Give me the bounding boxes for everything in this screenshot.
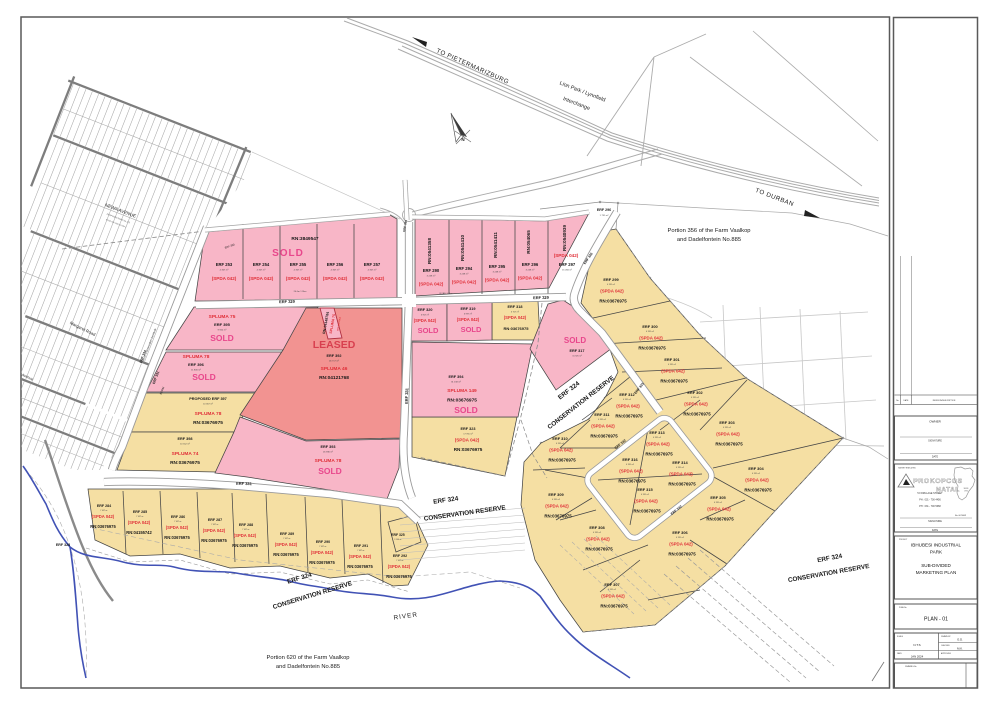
svg-text:3 249 m²: 3 249 m² xyxy=(493,271,502,274)
svg-text:RN:03676975: RN:03676975 xyxy=(683,412,711,417)
svg-text:PH : 031 - 700 4456: PH : 031 - 700 4456 xyxy=(919,499,941,502)
svg-text:SPLUMA 78: SPLUMA 78 xyxy=(315,458,342,464)
svg-text:ERF 329: ERF 329 xyxy=(279,299,296,304)
svg-text:PLAN - 01: PLAN - 01 xyxy=(924,617,948,623)
svg-text:RN:03676975: RN:03676975 xyxy=(544,514,572,519)
svg-text:PROJECT: PROJECT xyxy=(899,539,908,541)
svg-text:(SPDA 042): (SPDA 042) xyxy=(716,432,740,437)
svg-text:RN:03676975: RN:03676975 xyxy=(347,564,373,569)
svg-text:ERF 286: ERF 286 xyxy=(171,515,185,519)
svg-text:SOLD: SOLD xyxy=(210,333,234,343)
svg-text:46 717 m²: 46 717 m² xyxy=(329,360,339,363)
svg-text:7 457 m²: 7 457 m² xyxy=(174,520,182,523)
svg-text:4 391 m²: 4 391 m² xyxy=(552,498,560,501)
svg-text:1 791 m²: 1 791 m² xyxy=(600,214,609,217)
svg-text:ERF 302: ERF 302 xyxy=(687,390,703,395)
svg-text:ERF 394: ERF 394 xyxy=(449,375,465,379)
svg-text:4 391 m²: 4 391 m² xyxy=(623,398,631,401)
svg-text:ERF 290: ERF 290 xyxy=(423,268,440,273)
svg-text:ERF 323: ERF 323 xyxy=(461,427,476,431)
svg-text:DRAWN BY: DRAWN BY xyxy=(941,635,951,638)
svg-text:4 391 m²: 4 391 m² xyxy=(691,396,699,399)
svg-text:RN:03676975: RN:03676975 xyxy=(660,379,688,384)
svg-text:4 391 m²: 4 391 m² xyxy=(626,463,634,466)
svg-text:ERF 392: ERF 392 xyxy=(327,354,342,358)
svg-text:ERF 257: ERF 257 xyxy=(364,262,381,267)
svg-text:RN:03676975: RN:03676975 xyxy=(164,535,190,540)
svg-text:APPROVED: APPROVED xyxy=(941,652,952,655)
svg-text:ERF 325: ERF 325 xyxy=(391,533,404,537)
svg-text:4 367 m²: 4 367 m² xyxy=(331,269,340,272)
svg-text:No. 00700W: No. 00700W xyxy=(955,515,966,517)
svg-text:(SPDA 042): (SPDA 042) xyxy=(234,533,257,538)
svg-text:(SPDA 042): (SPDA 042) xyxy=(600,289,624,294)
svg-text:RN:03676975: RN:03676975 xyxy=(668,482,696,487)
svg-text:3 249 m²: 3 249 m² xyxy=(460,273,469,276)
svg-text:(SPDA 042): (SPDA 042) xyxy=(349,554,372,559)
svg-text:ERF 288: ERF 288 xyxy=(239,523,253,527)
svg-text:DATE: DATE xyxy=(897,652,902,655)
svg-text:3 249 m²: 3 249 m² xyxy=(427,275,436,278)
svg-text:(SPDA 042): (SPDA 042) xyxy=(545,504,569,509)
svg-text:ERF 253: ERF 253 xyxy=(216,262,233,267)
svg-text:ERF 393: ERF 393 xyxy=(321,445,336,449)
svg-text:4 367 m²: 4 367 m² xyxy=(257,269,266,272)
svg-text:(SPDA 042): (SPDA 042) xyxy=(601,594,625,599)
svg-text:ERF 254: ERF 254 xyxy=(253,262,270,267)
svg-text:No: No xyxy=(896,400,898,402)
svg-text:(SPDA 042): (SPDA 042) xyxy=(414,318,437,323)
svg-text:PLAN No: PLAN No xyxy=(899,606,907,609)
svg-text:ERF 314: ERF 314 xyxy=(672,460,688,465)
svg-text:RN:03676975: RN:03676975 xyxy=(548,458,576,463)
svg-text:RN:3849547: RN:3849547 xyxy=(291,236,319,242)
svg-text:RN:03676975: RN:03676975 xyxy=(633,509,661,514)
svg-text:ERF 315: ERF 315 xyxy=(637,487,653,492)
svg-text:10 367 m²: 10 367 m² xyxy=(203,403,213,406)
svg-text:ERF 299: ERF 299 xyxy=(603,277,619,282)
svg-text:RN:04121768: RN:04121768 xyxy=(319,375,349,381)
svg-text:SOLD: SOLD xyxy=(318,466,342,476)
svg-text:4 391 m²: 4 391 m² xyxy=(641,493,649,496)
svg-text:RN:03676975: RN:03676975 xyxy=(744,488,772,493)
svg-text:17 765 m²: 17 765 m² xyxy=(463,433,473,436)
svg-text:9 922 m²: 9 922 m² xyxy=(218,329,227,332)
svg-text:ERF 309: ERF 309 xyxy=(548,492,564,497)
svg-text:RN:0541410: RN:0541410 xyxy=(460,235,465,261)
svg-text:Portion 356 of the Farm Vaalko: Portion 356 of the Farm Vaalkop xyxy=(667,228,750,234)
svg-text:RN:03676975: RN:03676975 xyxy=(232,543,258,548)
svg-text:SOLD: SOLD xyxy=(454,405,478,415)
svg-text:RN:03676975: RN:03676975 xyxy=(585,547,613,552)
svg-text:4 391 m²: 4 391 m² xyxy=(593,531,601,534)
svg-text:ERF 294: ERF 294 xyxy=(456,266,473,271)
svg-text:ERF 320: ERF 320 xyxy=(418,308,433,312)
svg-text:RN:03676975: RN:03676975 xyxy=(170,460,200,466)
svg-text:SOLD: SOLD xyxy=(192,372,216,382)
svg-text:SOLD: SOLD xyxy=(418,326,439,335)
svg-text:DRAWING No: DRAWING No xyxy=(905,665,916,668)
svg-text:4 391 m²: 4 391 m² xyxy=(608,588,616,591)
svg-text:DATE: DATE xyxy=(932,456,939,459)
svg-text:SPLUMA 149: SPLUMA 149 xyxy=(447,388,477,394)
svg-text:3 146 m²: 3 146 m² xyxy=(394,538,402,541)
svg-text:SOLD: SOLD xyxy=(461,325,482,334)
svg-text:RN:03676975: RN:03676975 xyxy=(193,420,223,426)
svg-text:ERF 319: ERF 319 xyxy=(461,307,476,311)
svg-text:RN:03676975: RN:03676975 xyxy=(706,517,734,522)
svg-text:PROPOSED ERF 397: PROPOSED ERF 397 xyxy=(189,397,227,401)
svg-text:MARKETING PLAN: MARKETING PLAN xyxy=(916,570,957,575)
svg-text:(SPDA 042): (SPDA 042) xyxy=(249,276,274,281)
svg-text:SUB-DIVIDED: SUB-DIVIDED xyxy=(921,563,951,568)
svg-text:1994: 1994 xyxy=(964,491,968,493)
svg-text:RN:03676975: RN:03676975 xyxy=(504,326,530,331)
svg-text:RN:03676975: RN:03676975 xyxy=(386,574,412,579)
svg-text:45 936 m²: 45 936 m² xyxy=(323,451,333,454)
svg-text:(SPDA 042): (SPDA 042) xyxy=(311,550,334,555)
svg-text:4 391 m²: 4 391 m² xyxy=(723,426,731,429)
svg-text:ERF 313: ERF 313 xyxy=(649,430,665,435)
svg-text:ERF 301: ERF 301 xyxy=(664,357,680,362)
svg-text:ERF 306: ERF 306 xyxy=(672,530,688,535)
svg-text:3 997 m²: 3 997 m² xyxy=(464,313,473,316)
svg-text:4 391 m²: 4 391 m² xyxy=(752,472,760,475)
svg-text:7 457 m²: 7 457 m² xyxy=(283,537,291,540)
svg-text:RN:0541358: RN:0541358 xyxy=(427,238,432,264)
svg-text:(SPDA 042): (SPDA 042) xyxy=(128,520,151,525)
svg-text:ERF 295: ERF 295 xyxy=(489,264,506,269)
svg-text:RN:03676975: RN:03676975 xyxy=(638,346,666,351)
svg-text:ERF 255: ERF 255 xyxy=(290,262,307,267)
svg-text:ERF 305: ERF 305 xyxy=(710,495,726,500)
svg-text:ERF 291: ERF 291 xyxy=(354,544,368,548)
svg-text:ERF 292: ERF 292 xyxy=(393,554,407,558)
svg-text:SIGNATURE: SIGNATURE xyxy=(928,520,942,523)
svg-text:4 391 m²: 4 391 m² xyxy=(598,418,606,421)
svg-text:RN:03676975: RN:03676975 xyxy=(599,299,627,304)
svg-text:RN:054065: RN:054065 xyxy=(526,230,531,254)
svg-text:RN:03676975: RN:03676975 xyxy=(273,552,299,557)
svg-text:(SPDA 042): (SPDA 042) xyxy=(388,564,411,569)
svg-text:(SPDA 042): (SPDA 042) xyxy=(286,276,311,281)
svg-text:(SPDA 042): (SPDA 042) xyxy=(504,315,527,320)
svg-text:RN:0541411: RN:0541411 xyxy=(493,232,498,258)
svg-text:(SPDA 042): (SPDA 042) xyxy=(549,448,573,453)
svg-text:SOLD: SOLD xyxy=(564,336,586,345)
svg-text:4 367 m²: 4 367 m² xyxy=(368,269,377,272)
svg-text:(SPDA 042): (SPDA 042) xyxy=(616,404,640,409)
svg-text:(SPDA 042): (SPDA 042) xyxy=(455,438,480,443)
svg-text:RN:03676975: RN:03676975 xyxy=(454,447,483,452)
svg-text:5 FORULAGE STREET: 5 FORULAGE STREET xyxy=(917,492,943,495)
svg-text:ERF 285: ERF 285 xyxy=(133,510,147,514)
svg-text:RN:03676975: RN:03676975 xyxy=(645,452,673,457)
svg-text:4 367 m²: 4 367 m² xyxy=(220,269,229,272)
svg-text:LEASED: LEASED xyxy=(313,339,356,351)
svg-text:RN:03676975: RN:03676975 xyxy=(715,442,743,447)
svg-text:SCALE: SCALE xyxy=(897,635,904,638)
svg-text:4 391 m²: 4 391 m² xyxy=(607,283,615,286)
svg-text:(SPDA 042): (SPDA 042) xyxy=(203,528,226,533)
svg-text:SPLUMA 78: SPLUMA 78 xyxy=(195,411,222,417)
svg-text:RN:03676975: RN:03676975 xyxy=(600,604,628,609)
svg-text:4 391 m²: 4 391 m² xyxy=(653,436,661,439)
svg-text:ERF 290: ERF 290 xyxy=(316,540,330,544)
svg-text:4 367 m²: 4 367 m² xyxy=(294,269,303,272)
svg-text:REVISION/DESCRIPTION: REVISION/DESCRIPTION xyxy=(933,400,956,402)
svg-text:7 457 m²: 7 457 m² xyxy=(319,545,327,548)
svg-text:7 457 m²: 7 457 m² xyxy=(100,509,108,512)
svg-text:RN:03676975: RN:03676975 xyxy=(590,434,618,439)
svg-text:(SPDA 042): (SPDA 042) xyxy=(591,424,615,429)
svg-text:ERF 307: ERF 307 xyxy=(604,582,619,587)
svg-text:ERF 310: ERF 310 xyxy=(552,436,567,441)
svg-text:RN:0540939: RN:0540939 xyxy=(562,225,567,251)
svg-text:7 457 m²: 7 457 m² xyxy=(357,549,365,552)
svg-text:PH : 031 - 700 5668: PH : 031 - 700 5668 xyxy=(919,505,941,508)
svg-text:(SPDA 042): (SPDA 042) xyxy=(275,542,298,547)
svg-text:and Dadelfontein No.885: and Dadelfontein No.885 xyxy=(276,664,340,670)
svg-text:(SPDA 042): (SPDA 042) xyxy=(707,507,731,512)
svg-text:ERF 318: ERF 318 xyxy=(508,305,523,309)
svg-text:(SPDA 042): (SPDA 042) xyxy=(639,336,663,341)
svg-text:7 457 m²: 7 457 m² xyxy=(136,515,144,518)
svg-text:ERF 287: ERF 287 xyxy=(208,518,222,522)
svg-text:(SPDA 042): (SPDA 042) xyxy=(419,282,444,287)
svg-text:RN:04155742: RN:04155742 xyxy=(126,530,152,535)
svg-text:(SPDA 042): (SPDA 042) xyxy=(586,537,610,542)
svg-text:RN:03676975: RN:03676975 xyxy=(618,479,646,484)
svg-text:N.T.S: N.T.S xyxy=(913,643,920,647)
svg-text:Portion 620 of the Farm Vaalko: Portion 620 of the Farm Vaalkop xyxy=(266,655,349,661)
svg-text:(SPDA 042): (SPDA 042) xyxy=(669,472,693,477)
svg-text:20.0m 1 3km: 20.0m 1 3km xyxy=(294,291,307,293)
svg-text:ERF 398: ERF 398 xyxy=(178,437,193,441)
svg-text:SPLUMA 74: SPLUMA 74 xyxy=(172,451,199,457)
svg-text:PARK: PARK xyxy=(930,550,943,555)
svg-text:4 391 m²: 4 391 m² xyxy=(668,363,676,366)
svg-text:(SPDA 042): (SPDA 042) xyxy=(212,276,237,281)
svg-text:RN:03676975: RN:03676975 xyxy=(309,560,335,565)
svg-text:RN:03676975: RN:03676975 xyxy=(668,552,696,557)
svg-text:(SPDA 042): (SPDA 042) xyxy=(457,317,480,322)
svg-text:OWNER: OWNER xyxy=(929,420,941,424)
svg-text:SPLUMA 75: SPLUMA 75 xyxy=(209,314,236,320)
svg-text:4 391 m²: 4 391 m² xyxy=(714,501,722,504)
svg-text:G.D.: G.D. xyxy=(957,638,963,642)
svg-text:ERF 331: ERF 331 xyxy=(404,387,410,404)
svg-text:ERF 296: ERF 296 xyxy=(522,262,539,267)
svg-text:SPLUMA 46: SPLUMA 46 xyxy=(321,366,348,372)
svg-text:ERF 316: ERF 316 xyxy=(622,457,638,462)
svg-text:M.K.: M.K. xyxy=(957,647,963,651)
svg-text:ERF 289: ERF 289 xyxy=(280,532,294,536)
svg-text:IBHUBESI INDUSTRIAL: IBHUBESI INDUSTRIAL xyxy=(911,543,961,548)
svg-text:ERF 311: ERF 311 xyxy=(594,412,610,417)
svg-text:(SPDA 042): (SPDA 042) xyxy=(554,253,579,258)
svg-text:15 925 m²: 15 925 m² xyxy=(572,355,582,358)
svg-text:DATE: DATE xyxy=(932,529,939,532)
svg-text:(SPDA 042): (SPDA 042) xyxy=(323,276,348,281)
svg-text:(SPDA 042): (SPDA 042) xyxy=(452,280,477,285)
svg-text:4 391 m²: 4 391 m² xyxy=(676,536,684,539)
svg-text:4 391 m²: 4 391 m² xyxy=(646,330,654,333)
svg-text:RN:03676975: RN:03676975 xyxy=(90,524,116,529)
svg-text:(SPDA 042): (SPDA 042) xyxy=(518,276,543,281)
svg-text:7 457 m²: 7 457 m² xyxy=(242,528,250,531)
svg-text:(SPDA 042): (SPDA 042) xyxy=(92,514,115,519)
svg-text:and Dadelfontein No.885: and Dadelfontein No.885 xyxy=(677,237,741,243)
svg-text:3 757 m²: 3 757 m² xyxy=(511,311,520,314)
svg-text:15 094 m²: 15 094 m² xyxy=(562,269,572,272)
svg-text:SINCE: SINCE xyxy=(964,488,969,490)
svg-text:10 312 m²: 10 312 m² xyxy=(180,443,190,446)
svg-text:ROAD 1 3km: ROAD 1 3km xyxy=(440,292,453,295)
svg-text:CHECKED: CHECKED xyxy=(941,645,950,647)
svg-text:ERF 303: ERF 303 xyxy=(719,420,735,425)
svg-text:ERF 284: ERF 284 xyxy=(97,504,111,508)
svg-text:31 158 m²: 31 158 m² xyxy=(451,381,461,384)
svg-text:4 391 m²: 4 391 m² xyxy=(676,466,684,469)
svg-text:ERF 300: ERF 300 xyxy=(642,324,657,329)
svg-text:RN:03676975: RN:03676975 xyxy=(615,414,643,419)
svg-text:(SPDA 042): (SPDA 042) xyxy=(485,278,510,283)
svg-text:(SPDA 042): (SPDA 042) xyxy=(619,469,643,474)
svg-text:SIGNATURE: SIGNATURE xyxy=(928,440,942,443)
svg-text:RN:03676975: RN:03676975 xyxy=(201,538,227,543)
svg-text:(SPDA 042): (SPDA 042) xyxy=(669,542,693,547)
svg-text:ERF 395: ERF 395 xyxy=(214,322,231,327)
svg-text:(SPDA 042): (SPDA 042) xyxy=(634,499,658,504)
svg-text:ERF 329: ERF 329 xyxy=(533,295,550,300)
svg-text:ERF 317: ERF 317 xyxy=(570,349,585,353)
svg-text:SURVEY EXECUTED: SURVEY EXECUTED xyxy=(898,468,916,470)
svg-text:7 457 m²: 7 457 m² xyxy=(396,559,404,562)
svg-text:(SPDA 042): (SPDA 042) xyxy=(166,525,189,530)
svg-text:ERF 331: ERF 331 xyxy=(236,481,253,486)
svg-text:(SPDA 042): (SPDA 042) xyxy=(684,402,708,407)
svg-text:(SPDA 042): (SPDA 042) xyxy=(360,276,385,281)
svg-text:DATE: DATE xyxy=(904,399,910,402)
svg-text:3 249 m²: 3 249 m² xyxy=(526,269,535,272)
svg-text:ERF 256: ERF 256 xyxy=(327,262,344,267)
svg-text:7 457 m²: 7 457 m² xyxy=(211,523,219,526)
svg-text:ERF 296: ERF 296 xyxy=(597,208,611,212)
svg-text:ERF 304: ERF 304 xyxy=(748,466,764,471)
svg-text:ERF 297: ERF 297 xyxy=(559,262,576,267)
svg-text:(SPDA 042): (SPDA 042) xyxy=(745,478,769,483)
svg-text:ERF 396: ERF 396 xyxy=(188,362,205,367)
svg-text:N: N xyxy=(461,137,464,142)
svg-text:ERF 308: ERF 308 xyxy=(589,525,605,530)
svg-text:JAN 2024: JAN 2024 xyxy=(911,655,924,659)
svg-text:RN:03676975: RN:03676975 xyxy=(447,398,477,404)
svg-text:SPLUMA 78: SPLUMA 78 xyxy=(183,354,210,360)
svg-text:(SPDA 042): (SPDA 042) xyxy=(646,442,670,447)
svg-text:(SPDA 042): (SPDA 042) xyxy=(661,369,685,374)
svg-text:4 391 m²: 4 391 m² xyxy=(556,442,564,445)
svg-text:3 907 m²: 3 907 m² xyxy=(421,314,430,317)
svg-text:ERF 328: ERF 328 xyxy=(56,543,70,547)
svg-text:SOLD: SOLD xyxy=(272,248,304,259)
